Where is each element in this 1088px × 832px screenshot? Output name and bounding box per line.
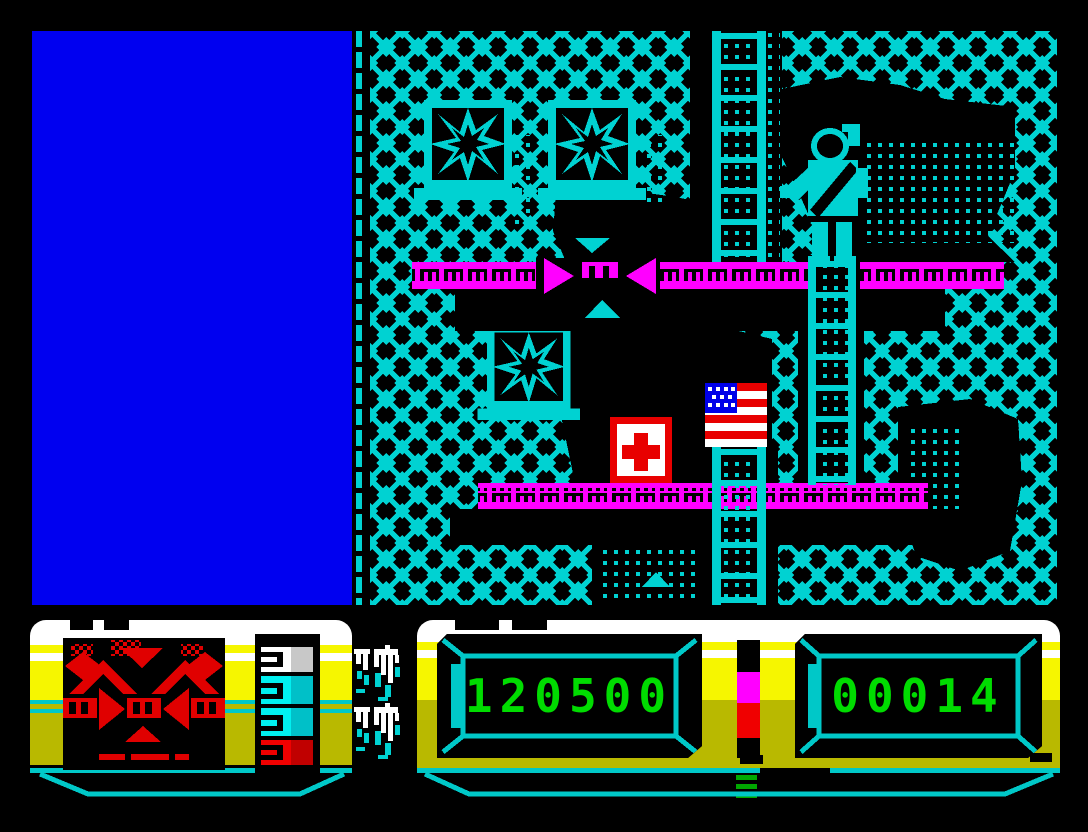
platform-shadow: [455, 289, 945, 331]
ladder-icon: [712, 447, 766, 605]
panel-base-outline: [30, 770, 352, 798]
hud-left-panel: [30, 620, 352, 798]
vent-notch: [104, 620, 129, 630]
ladder-icon: [712, 31, 766, 262]
condition-column: [737, 640, 760, 758]
zx-game-screen: 120500 00014: [0, 0, 1088, 832]
panel-base-outline: [417, 770, 1060, 798]
cracked-window-icon: [538, 100, 646, 200]
game-viewport[interactable]: [370, 31, 1057, 605]
vent-notch: [70, 620, 93, 630]
american-flag-icon: [705, 383, 767, 447]
score-value: 120500: [465, 669, 673, 723]
cracked-window-icon: [478, 325, 581, 420]
vent-notch: [512, 620, 547, 630]
first-aid-kit-icon: [610, 417, 672, 483]
girder-platform-icon: [478, 483, 928, 509]
vent-notch: [455, 620, 499, 630]
left-blank-panel: [32, 31, 352, 605]
debris-glyph-icon: [354, 703, 414, 761]
counter-value: 00014: [831, 669, 1004, 723]
counter-display: 00014: [795, 634, 1042, 758]
debris-glyph-icon: [354, 645, 414, 703]
girder-platform-icon: [412, 258, 1004, 294]
energy-gauge: [255, 634, 320, 774]
radar-minimap: [63, 638, 225, 770]
ladder-icon: [808, 259, 856, 485]
hud-right-panel: 120500 00014: [417, 620, 1060, 798]
score-display: 120500: [437, 634, 702, 758]
cracked-window-icon: [414, 100, 522, 200]
panel-divider-dashed-line: [356, 31, 362, 605]
